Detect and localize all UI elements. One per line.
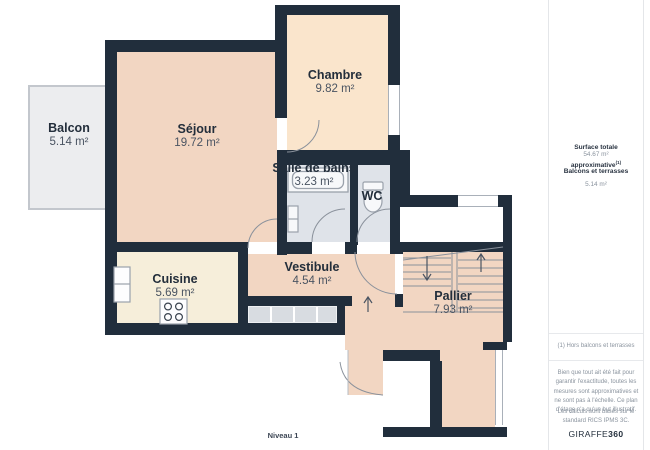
sink-icon — [288, 206, 298, 232]
stairs-break-line — [403, 247, 503, 260]
label-vestibule: Vestibule 4.54 m² — [285, 260, 340, 289]
divider — [549, 360, 643, 361]
giraffe360-logo: GIRAFFE360 — [553, 429, 639, 439]
label-sejour: Séjour 19.72 m² — [174, 122, 219, 151]
label-cuisine: Cuisine 5.69 m² — [152, 272, 197, 301]
door-arc-salle-de-bains — [312, 209, 345, 242]
footnote-marker: (1) — [616, 160, 622, 165]
kitchen-counter-icon — [114, 267, 130, 302]
passage-up-arrow — [364, 297, 372, 312]
label-balcon: Balcon 5.14 m² — [48, 121, 90, 150]
balconies-value: 5.14 m² — [553, 181, 639, 188]
door-arc-sejour — [248, 219, 277, 248]
stove-icon — [160, 299, 187, 324]
door-arc-chambre — [287, 120, 319, 152]
stairs-up-arrow — [477, 254, 485, 272]
door-arc-lower-exit — [340, 362, 383, 395]
label-wc: WC — [362, 189, 383, 203]
label-chambre: Chambre 9.82 m² — [308, 68, 362, 97]
floorplan-page: Balcon 5.14 m² Séjour 19.72 m² Chambre 9… — [0, 0, 650, 450]
door-arc-wc — [357, 209, 390, 242]
standard-note: Les calculs sont basés sur le standard R… — [553, 408, 639, 427]
door-arc-vestibule — [355, 252, 397, 294]
total-surface-value: 54.67 m² — [553, 151, 639, 158]
label-pallier: Pallier 7.93 m² — [434, 289, 473, 318]
balconies-label: Balcons et terrasses — [553, 168, 639, 175]
footnote-text: (1) Hors balcons et terrasses — [553, 342, 639, 351]
stairs-down-arrow — [423, 256, 431, 280]
summary-sidebar: Surface totale approximative(1) 54.67 m²… — [548, 0, 644, 450]
divider — [549, 333, 643, 334]
label-salle-de-bains: Salle de bains 3.23 m² — [272, 161, 355, 190]
